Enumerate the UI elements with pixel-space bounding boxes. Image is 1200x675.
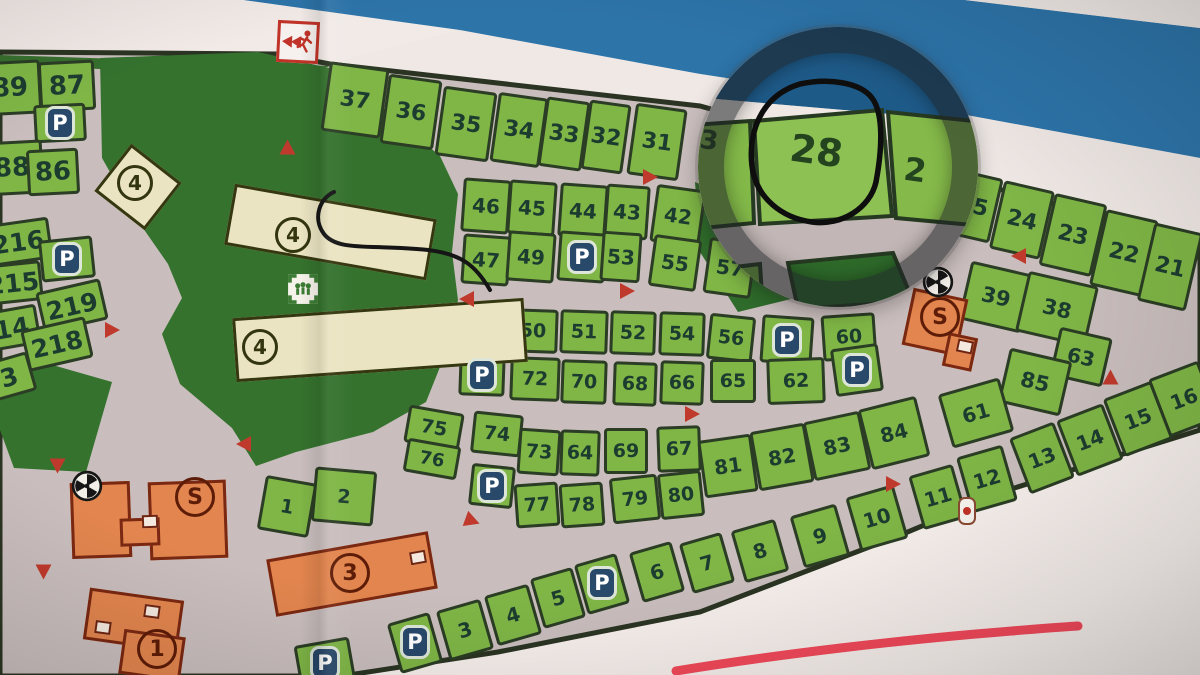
magnifier-ring [698,27,978,307]
exit-sign-glyph [279,23,317,61]
campground-map-photo: 8987888621621521914218337363534333231252… [0,0,1200,675]
exit-sign [276,20,320,64]
map-base-graphics [0,0,1200,675]
magnifier-circle: 28 2 3 [698,27,978,307]
